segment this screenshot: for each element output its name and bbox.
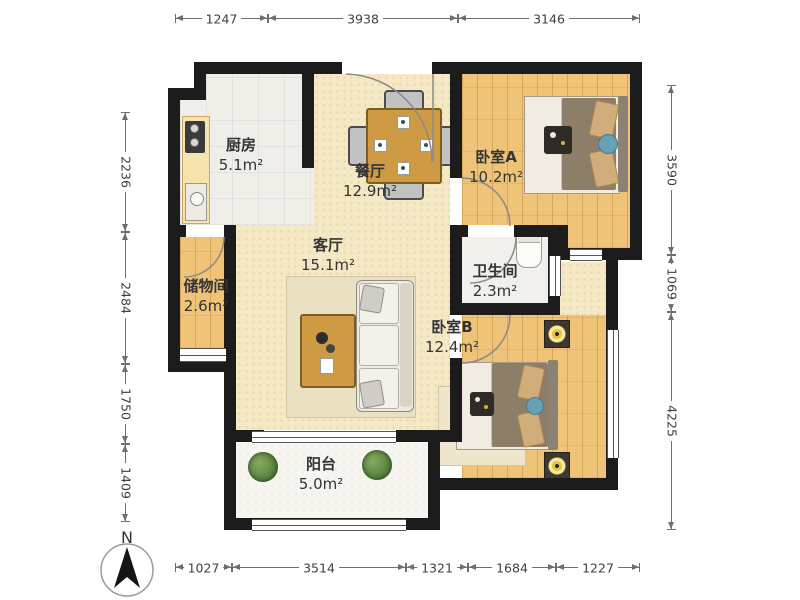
kitchen-counter	[182, 116, 210, 224]
bed-a	[524, 96, 628, 192]
storage-door-opening	[186, 225, 224, 237]
balcony-slider-door	[252, 431, 396, 443]
wall-center-lower	[450, 358, 462, 442]
bedroom-b-window	[607, 330, 619, 458]
dim-top-1: 1247	[175, 18, 268, 19]
dim-left-1: 2236	[125, 112, 126, 232]
entry-door-opening	[342, 62, 432, 74]
wall-kitchen-right	[302, 62, 314, 168]
wall-bathroom-bottom	[450, 303, 560, 315]
wall-bedroom-b-bottom	[428, 478, 618, 490]
balcony-window	[252, 519, 406, 531]
dim-left-2: 2484	[125, 232, 126, 364]
dim-right-1: 3590	[671, 85, 672, 255]
sofa	[356, 280, 414, 412]
plant-icon	[248, 452, 278, 482]
bed-b	[456, 360, 558, 450]
wall-balcony-left	[224, 360, 236, 530]
dim-bottom-5: 1227	[556, 567, 640, 568]
compass-icon: N	[101, 528, 153, 596]
plant-icon	[362, 450, 392, 480]
room-label-kitchen: 厨房5.1m²	[219, 135, 263, 175]
alcove-floor	[560, 262, 606, 315]
dim-top-2: 3938	[268, 18, 458, 19]
dim-bottom-4: 1684	[468, 567, 556, 568]
room-label-bedroom-a: 卧室A10.2m²	[469, 147, 523, 187]
compass-north-label: N	[121, 528, 133, 547]
wall-right-upper	[630, 62, 642, 260]
storage-window	[180, 348, 226, 362]
room-label-bathroom: 卫生间2.3m²	[472, 261, 517, 301]
dim-bottom-3: 1321	[406, 567, 468, 568]
wall-bathroom-left	[450, 225, 462, 315]
nightstand	[544, 320, 570, 348]
toilet-icon	[516, 232, 542, 268]
bathroom-door-opening	[468, 225, 514, 237]
dim-bottom-1: 1027	[175, 567, 232, 568]
dim-bottom-2: 3514	[232, 567, 406, 568]
dim-top-3: 3146	[458, 18, 640, 19]
wall-center-upper	[450, 62, 462, 178]
kitchen-sink-icon	[185, 183, 207, 221]
room-label-dining: 餐厅12.9m²	[343, 161, 397, 201]
dim-right-2: 1069	[671, 255, 672, 312]
floor-plan: N 厨房5.1m² 餐厅12.9m² 卧室A10.2m² 客厅15.1m² 储物…	[0, 0, 800, 600]
room-label-balcony: 阳台5.0m²	[299, 454, 343, 494]
room-label-storage: 储物间2.6m²	[183, 276, 228, 316]
room-label-bedroom-b: 卧室B12.4m²	[425, 317, 479, 357]
dim-left-4: 1409	[125, 444, 126, 522]
stove-icon	[185, 121, 205, 153]
lamp-icon	[548, 457, 566, 475]
alcove-window	[570, 249, 602, 261]
bathroom-window	[549, 256, 561, 296]
lamp-icon	[548, 325, 566, 343]
coffee-table	[300, 314, 356, 388]
dim-right-3: 4225	[671, 312, 672, 530]
nightstand	[544, 452, 570, 480]
dim-left-3: 1750	[125, 364, 126, 444]
room-label-living: 客厅15.1m²	[301, 235, 355, 275]
